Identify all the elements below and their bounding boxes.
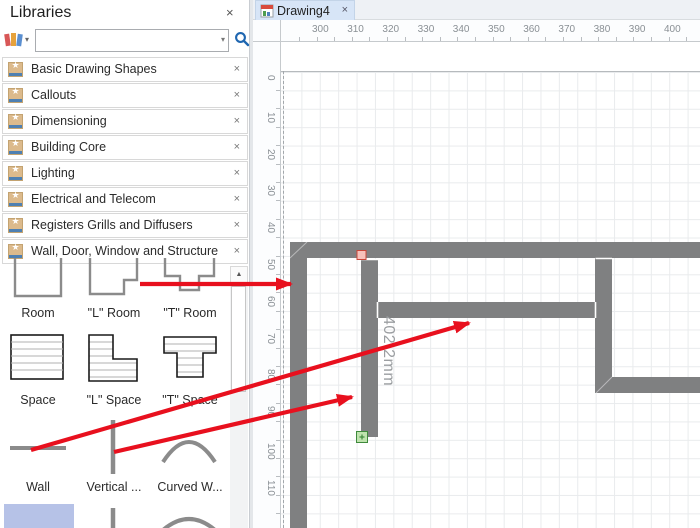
ruler-tick <box>369 37 370 41</box>
ruler-tick <box>581 37 582 41</box>
shape-label: "L" Space <box>76 393 152 407</box>
library-item[interactable]: ★Basic Drawing Shapes× <box>2 57 248 82</box>
scroll-up-icon[interactable]: ▲ <box>230 266 248 283</box>
ruler-tick <box>276 219 280 220</box>
library-star-icon: ★ <box>8 166 23 181</box>
shape-room-icon[interactable] <box>8 263 68 301</box>
ruler-tick <box>475 37 476 41</box>
library-star-icon: ★ <box>8 140 23 155</box>
library-star-icon: ★ <box>8 88 23 103</box>
ruler-tick <box>317 37 318 41</box>
ruler-tick <box>299 37 300 41</box>
ruler-tick-label: 40 <box>265 222 276 233</box>
chevron-down-icon[interactable]: ▾ <box>221 35 225 44</box>
ruler-tick-label: 360 <box>523 24 540 35</box>
library-item[interactable]: ★Callouts× <box>2 83 248 108</box>
ruler-tick <box>276 329 280 330</box>
ruler-tick-label: 380 <box>594 24 611 35</box>
star-icon: ★ <box>9 164 22 175</box>
close-icon[interactable]: × <box>234 115 240 127</box>
ruler-tick-label: 350 <box>488 24 505 35</box>
ruler-tick-label: 50 <box>265 259 276 270</box>
library-item[interactable]: ★Registers Grills and Diffusers× <box>2 213 248 238</box>
ruler-tick <box>510 37 511 41</box>
ruler-tick <box>334 37 335 41</box>
shape-vertical-wall-icon[interactable] <box>79 506 147 528</box>
ruler-tick <box>276 513 280 514</box>
ruler-tick <box>545 37 546 41</box>
ruler-tick <box>276 108 280 109</box>
ruler-tick <box>276 292 280 293</box>
ruler-tick-label: 0 <box>265 75 276 81</box>
tab-drawing4[interactable]: Drawing4 × <box>255 0 355 20</box>
ruler-tick <box>276 256 280 257</box>
ruler-tick <box>686 37 687 41</box>
ruler-tick <box>616 37 617 41</box>
document-icon <box>260 4 274 18</box>
search-box: ▾ <box>35 29 229 52</box>
ruler-tick <box>276 403 280 404</box>
ruler-tick-label: 310 <box>347 24 364 35</box>
shape-label: Room <box>0 306 76 320</box>
ruler-tick <box>276 348 280 349</box>
library-item-label: Callouts <box>31 88 76 102</box>
shape-curved-wall-icon[interactable] <box>155 418 223 476</box>
ruler-tick <box>422 37 423 41</box>
close-icon[interactable]: × <box>234 167 240 179</box>
search-input[interactable] <box>38 31 210 50</box>
ruler-tick-label: 320 <box>382 24 399 35</box>
ruler-tick <box>598 37 599 41</box>
scrollbar-thumb[interactable] <box>231 286 246 392</box>
ruler-tick-label: 370 <box>558 24 575 35</box>
library-item[interactable]: ★Electrical and Telecom× <box>2 187 248 212</box>
star-icon: ★ <box>9 112 22 123</box>
shape-l-space-icon[interactable] <box>84 332 144 384</box>
panel-title: Libraries <box>10 4 71 22</box>
ruler-tick-label: 10 <box>265 112 276 123</box>
vertical-ruler: 0102030405060708090100110 <box>253 42 281 528</box>
shape-label: Space <box>0 393 76 407</box>
ruler-tick <box>493 37 494 41</box>
shape-t-space-icon[interactable] <box>160 332 220 384</box>
ruler-tick <box>276 145 280 146</box>
shapes-scrollbar[interactable]: ▲ <box>230 266 248 528</box>
libraries-panel: Libraries × ▾ ▾ ★Basic Drawing Shapes×★C… <box>0 0 250 528</box>
star-icon: ★ <box>9 242 22 253</box>
shape-t-room-icon[interactable] <box>160 263 220 301</box>
shape-space-icon[interactable] <box>8 332 68 384</box>
shape-wall-icon[interactable] <box>4 418 72 476</box>
ruler-tick <box>276 366 280 367</box>
ruler-tick-label: 90 <box>265 406 276 417</box>
ruler-tick <box>457 37 458 41</box>
search-icon[interactable] <box>234 31 250 47</box>
ruler-tick <box>633 37 634 41</box>
application-window: Libraries × ▾ ▾ ★Basic Drawing Shapes×★C… <box>0 0 700 528</box>
close-icon[interactable]: × <box>234 141 240 153</box>
wall-dimension-label: 402.2mm <box>379 316 397 386</box>
library-item[interactable]: ★Lighting× <box>2 161 248 186</box>
library-item[interactable]: ★Wall, Door, Window and Structure× <box>2 239 248 264</box>
library-item-label: Wall, Door, Window and Structure <box>31 244 218 258</box>
ruler-tick <box>669 37 670 41</box>
library-star-icon: ★ <box>8 62 23 77</box>
ruler-tick <box>352 37 353 41</box>
library-item-label: Registers Grills and Diffusers <box>31 218 193 232</box>
selected-shape-highlight[interactable] <box>4 504 74 528</box>
ruler-corner <box>253 20 281 42</box>
star-icon: ★ <box>9 216 22 227</box>
library-item-label: Dimensioning <box>31 114 107 128</box>
library-item-label: Lighting <box>31 166 75 180</box>
library-star-icon: ★ <box>8 218 23 233</box>
ruler-tick <box>276 440 280 441</box>
ruler-tick-label: 300 <box>312 24 329 35</box>
shape-vertical-wall-icon[interactable] <box>79 418 147 476</box>
ruler-tick <box>276 200 280 201</box>
canvas-grid <box>281 71 700 528</box>
ruler-tick <box>276 182 280 183</box>
library-list: ★Basic Drawing Shapes×★Callouts×★Dimensi… <box>2 57 248 265</box>
close-icon[interactable]: × <box>342 4 348 16</box>
ruler-tick <box>528 37 529 41</box>
ruler-tick <box>276 164 280 165</box>
shape-label: Wall <box>0 480 76 494</box>
ruler-tick-label: 110 <box>265 480 276 496</box>
document-tabbar: Drawing4 × <box>253 0 700 20</box>
library-star-icon: ★ <box>8 114 23 129</box>
ruler-tick-label: 400 <box>664 24 681 35</box>
ruler-tick-label: 20 <box>265 149 276 160</box>
library-item-label: Basic Drawing Shapes <box>31 62 157 76</box>
close-icon[interactable]: × <box>234 245 240 257</box>
ruler-tick <box>276 311 280 312</box>
star-icon: ★ <box>9 60 22 71</box>
tab-title: Drawing4 <box>277 4 330 18</box>
ruler-tick-label: 330 <box>418 24 435 35</box>
ruler-tick-label: 60 <box>265 296 276 307</box>
chevron-down-icon[interactable]: ▾ <box>25 35 29 44</box>
ruler-tick-label: 340 <box>453 24 470 35</box>
close-icon[interactable]: × <box>234 193 240 205</box>
star-icon: ★ <box>9 190 22 201</box>
shape-label: Vertical ... <box>76 480 152 494</box>
ruler-tick-label: 30 <box>265 185 276 196</box>
close-icon[interactable]: × <box>226 5 234 20</box>
books-icon[interactable] <box>4 30 24 48</box>
ruler-tick <box>276 421 280 422</box>
star-icon: ★ <box>9 86 22 97</box>
library-item[interactable]: ★Dimensioning× <box>2 109 248 134</box>
ruler-tick <box>405 37 406 41</box>
ruler-tick <box>276 476 280 477</box>
library-item-label: Building Core <box>31 140 106 154</box>
ruler-tick <box>563 37 564 41</box>
ruler-tick <box>276 127 280 128</box>
ruler-tick-label: 100 <box>265 443 276 460</box>
library-star-icon: ★ <box>8 192 23 207</box>
shape-curved-wall-icon[interactable] <box>155 514 223 528</box>
shape-label: "T" Room <box>152 306 228 320</box>
ruler-tick <box>440 37 441 41</box>
shape-label: "T" Space <box>152 393 228 407</box>
ruler-tick <box>276 495 280 496</box>
ruler-tick <box>276 237 280 238</box>
close-icon[interactable]: × <box>234 219 240 231</box>
ruler-tick-label: 390 <box>629 24 646 35</box>
ruler-tick <box>276 274 280 275</box>
shape-l-room-icon[interactable] <box>84 263 144 301</box>
shape-label: Curved W... <box>152 480 228 494</box>
library-star-icon: ★ <box>8 244 23 259</box>
page-margin-guide <box>283 71 284 528</box>
library-item-label: Electrical and Telecom <box>31 192 156 206</box>
ruler-tick <box>387 37 388 41</box>
close-icon[interactable]: × <box>234 89 240 101</box>
library-item[interactable]: ★Building Core× <box>2 135 248 160</box>
ruler-tick <box>651 37 652 41</box>
star-icon: ★ <box>9 138 22 149</box>
ruler-tick-label: 70 <box>265 333 276 344</box>
ruler-tick <box>276 90 280 91</box>
horizontal-ruler: 300310320330340350360370380390400 <box>281 20 700 42</box>
shape-label: "L" Room <box>76 306 152 320</box>
ruler-tick-label: 80 <box>265 369 276 380</box>
close-icon[interactable]: × <box>234 63 240 75</box>
ruler-tick <box>276 384 280 385</box>
ruler-tick <box>276 458 280 459</box>
